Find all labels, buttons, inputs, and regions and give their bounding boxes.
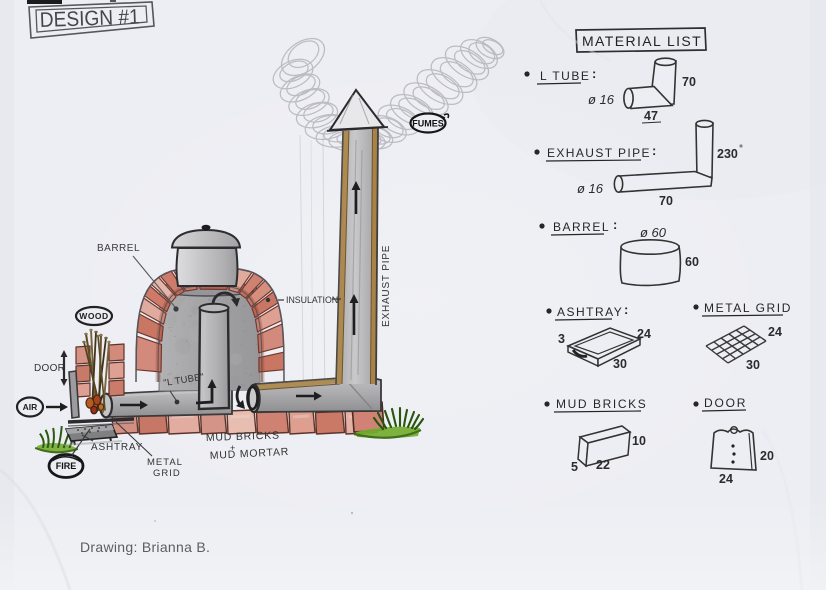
svg-text:METAL: METAL [147,457,183,468]
svg-text:22: 22 [596,458,610,472]
svg-text:24: 24 [719,472,733,486]
svg-text:EXHAUST PIPE: EXHAUST PIPE [547,146,651,160]
svg-text:70: 70 [659,194,673,208]
svg-text:ASHTRAY: ASHTRAY [91,442,143,453]
svg-text:BARREL: BARREL [553,220,610,234]
svg-text:230: 230 [717,147,738,161]
svg-text:ASHTRAY: ASHTRAY [557,305,623,319]
svg-text:MUD BRICKS: MUD BRICKS [556,397,647,411]
svg-text:BARREL: BARREL [97,243,140,254]
svg-text:Drawing: Brianna B.: Drawing: Brianna B. [80,539,210,555]
svg-text:MATERIAL LIST: MATERIAL LIST [582,33,702,49]
svg-text:INSULATION: INSULATION [286,295,338,305]
svg-text:L TUBE: L TUBE [540,69,590,83]
svg-text:METAL GRID: METAL GRID [704,301,792,315]
svg-text::: : [592,66,596,81]
svg-text:ø 60: ø 60 [640,225,667,240]
svg-text:DOOR: DOOR [34,363,65,374]
svg-text:30: 30 [746,358,760,372]
svg-text:ø 16: ø 16 [577,181,604,196]
svg-text:5: 5 [571,460,578,474]
svg-text:60: 60 [685,255,699,269]
svg-text:WOOD: WOOD [79,311,108,321]
svg-text:24: 24 [768,325,782,339]
svg-text:24: 24 [637,327,651,341]
svg-text:EXHAUST PIPE: EXHAUST PIPE [381,245,392,327]
svg-text:GRID: GRID [153,468,181,479]
svg-text::: : [613,217,617,232]
svg-text:DESIGN #1: DESIGN #1 [39,6,140,32]
svg-text::: : [652,143,656,158]
svg-text:30: 30 [613,357,627,371]
svg-text:DOOR: DOOR [704,396,747,410]
svg-text:20: 20 [760,449,774,463]
svg-text:10: 10 [632,434,646,448]
svg-text:70: 70 [682,75,696,89]
svg-text:3: 3 [558,332,565,346]
svg-text:ø 16: ø 16 [588,92,615,107]
svg-text:FUMES: FUMES [412,119,444,129]
svg-text:47: 47 [644,109,658,123]
svg-text:FIRE: FIRE [56,461,77,471]
svg-text:AIR: AIR [23,402,38,412]
svg-text::: : [624,302,628,317]
